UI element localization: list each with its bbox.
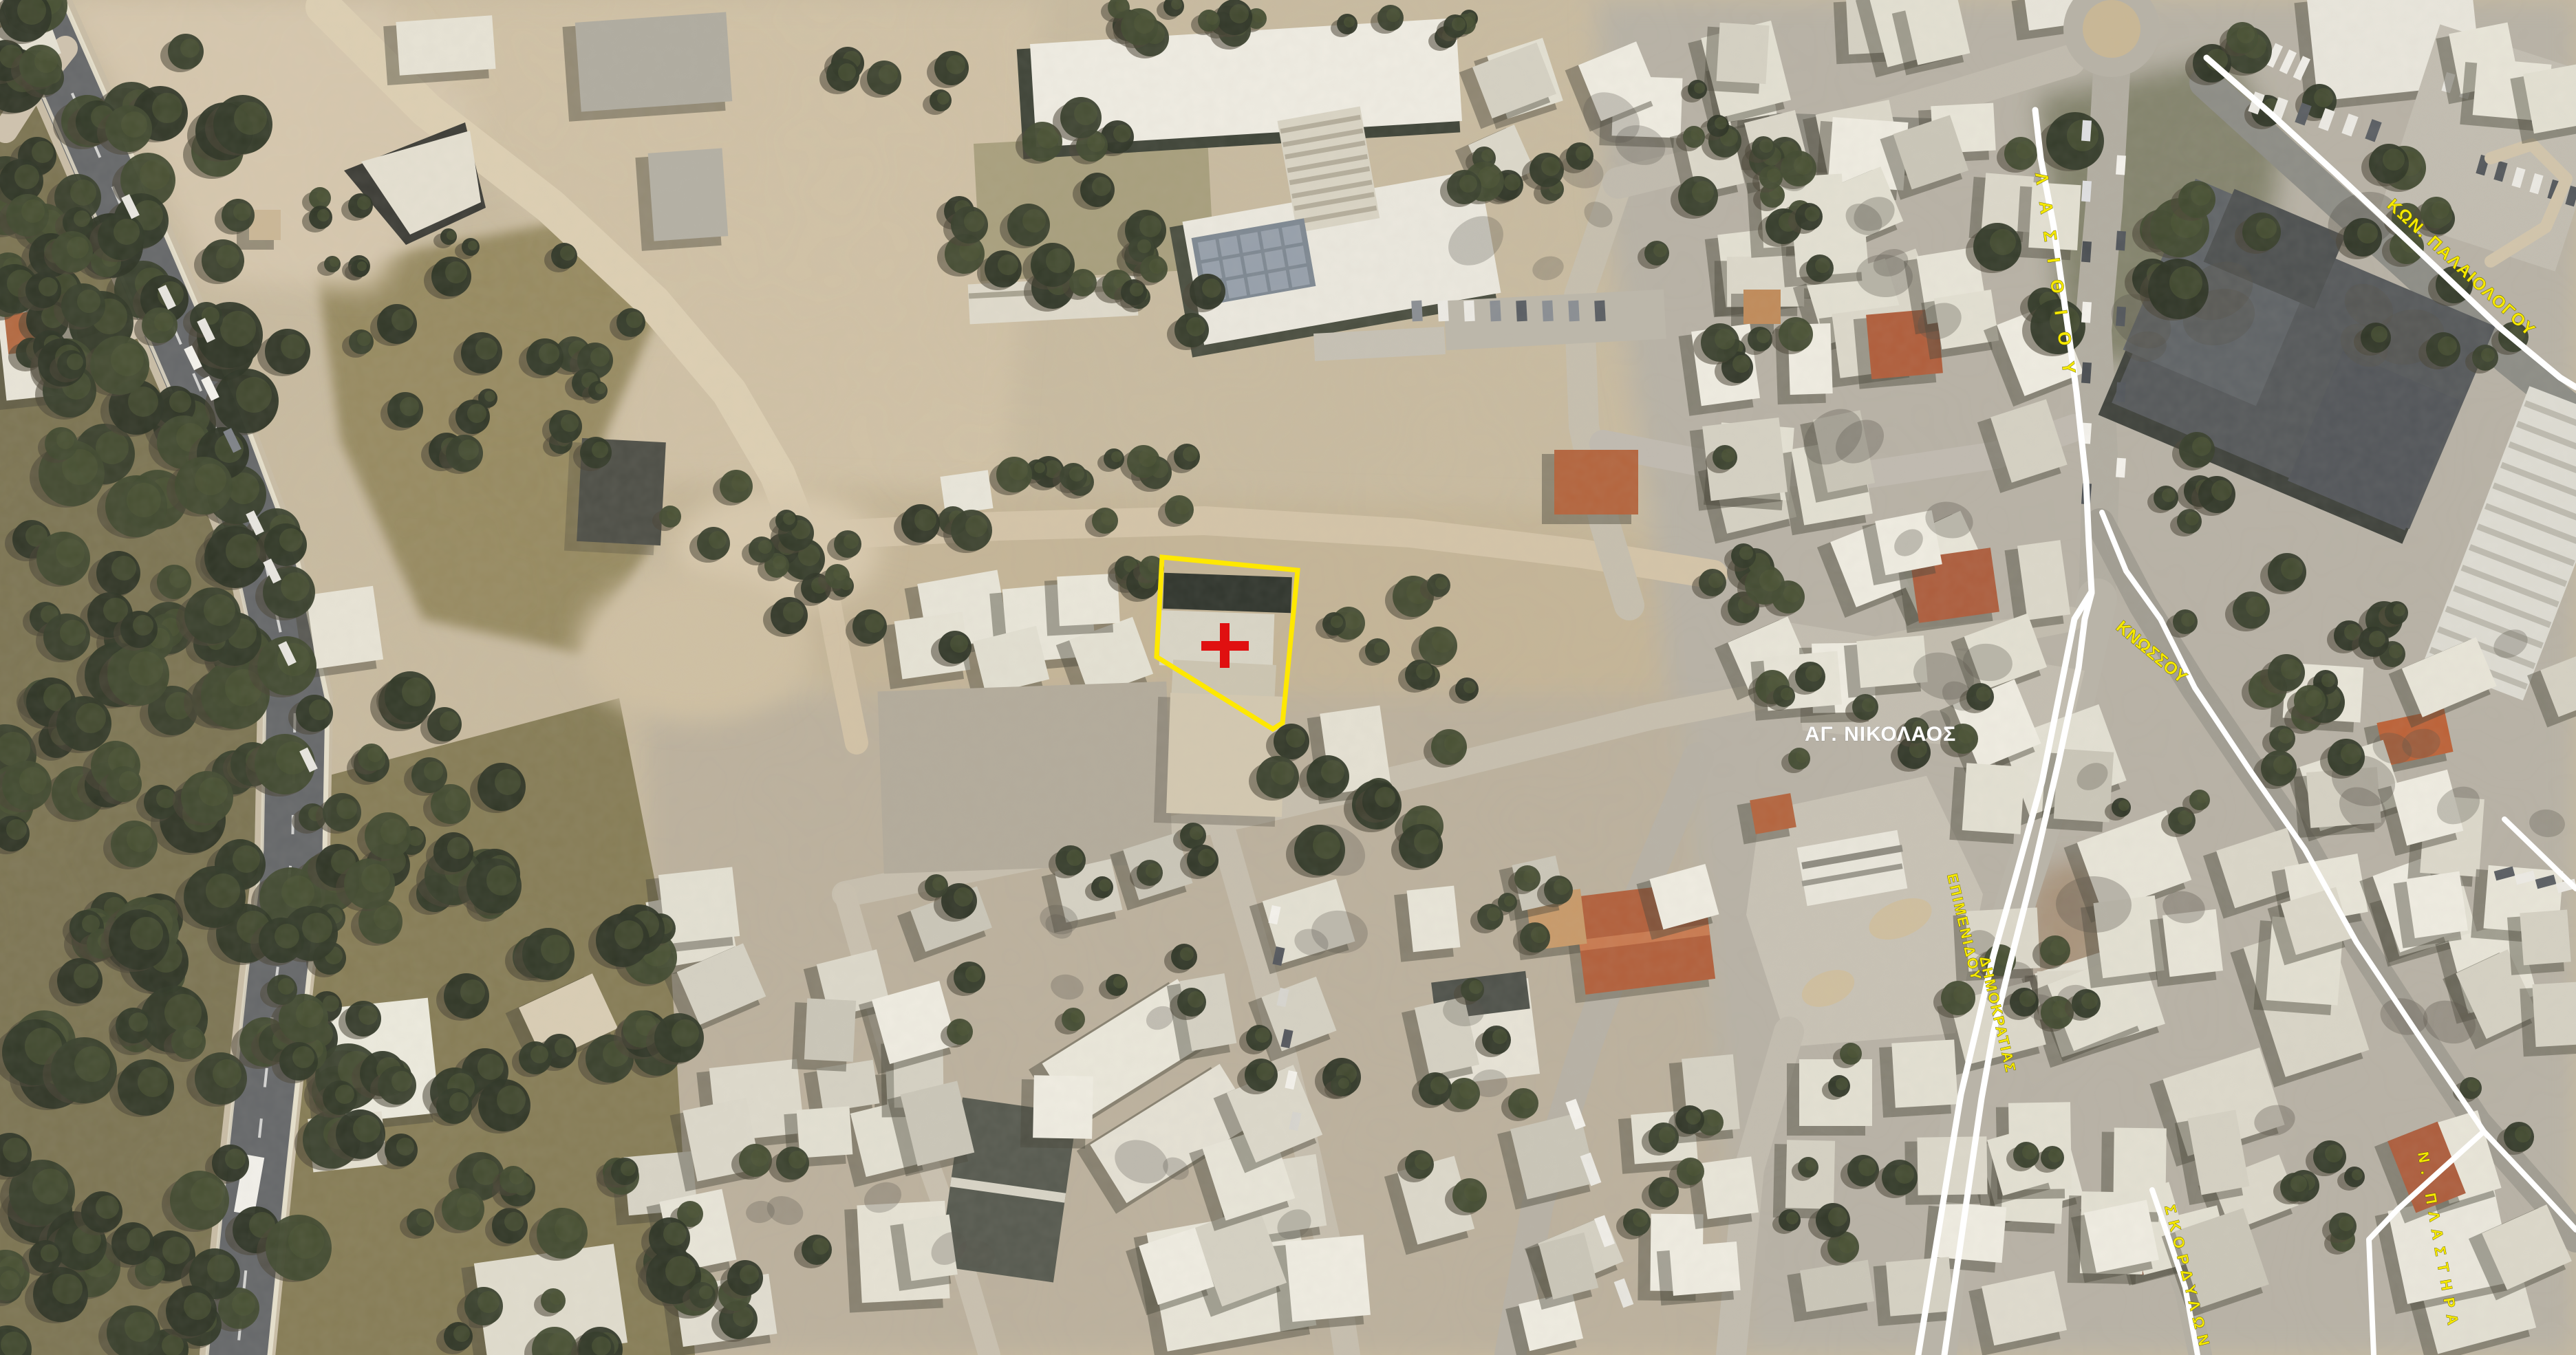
svg-text:ΑΓ. ΝΙΚΟΛΑΟΣ: ΑΓ. ΝΙΚΟΛΑΟΣ bbox=[1805, 723, 1956, 746]
